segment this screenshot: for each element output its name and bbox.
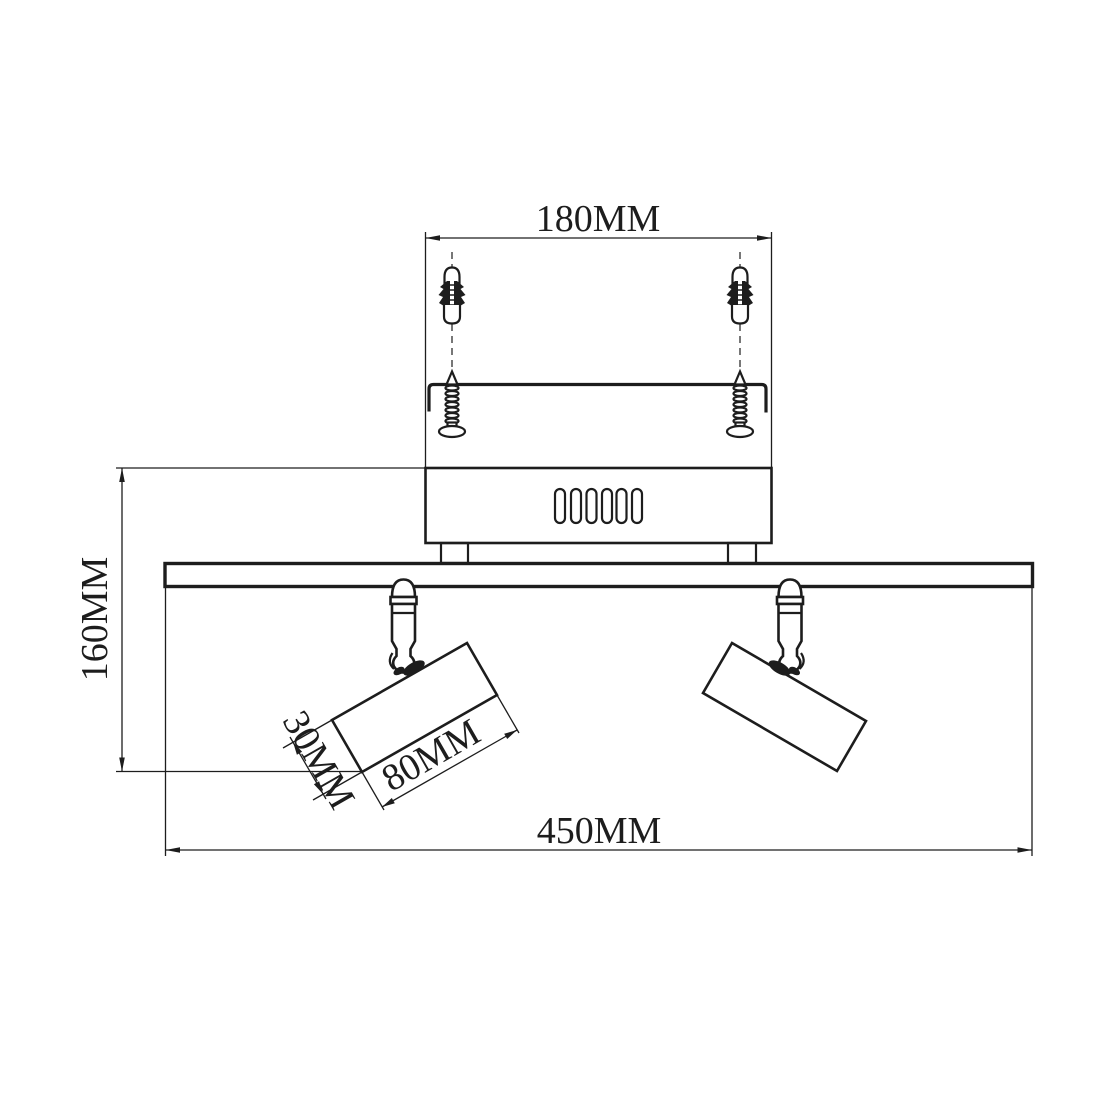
spotlight-installation-diagram: 180MM bbox=[0, 0, 1119, 1119]
arrowhead-front bbox=[382, 798, 395, 807]
wall-anchor-right bbox=[727, 268, 754, 324]
arrowhead-top bbox=[119, 468, 125, 482]
arrowhead-rear bbox=[504, 730, 517, 739]
label-180mm: 180MM bbox=[536, 198, 661, 240]
track-rail bbox=[165, 564, 1033, 587]
arrowhead-right bbox=[1018, 847, 1033, 853]
arrowhead-left bbox=[166, 847, 181, 853]
arrowhead-left bbox=[426, 235, 441, 241]
spot-stem-right bbox=[766, 580, 803, 679]
screw-right bbox=[727, 372, 753, 438]
label-450mm: 450MM bbox=[537, 810, 662, 852]
arrowhead-bottom bbox=[119, 758, 125, 772]
canopy-foot-right bbox=[728, 543, 756, 563]
dimension-mounting-hole-spacing: 180MM bbox=[426, 198, 772, 468]
arrowhead-right bbox=[757, 235, 772, 241]
screw-left bbox=[439, 372, 465, 438]
mounting-bracket bbox=[429, 385, 766, 413]
wall-anchor-left bbox=[439, 268, 466, 324]
canopy-foot-left bbox=[441, 543, 468, 563]
label-160mm: 160MM bbox=[74, 557, 116, 682]
canopy-box bbox=[426, 468, 772, 563]
spot-stem-left bbox=[390, 580, 427, 679]
anchor-centerlines bbox=[452, 252, 740, 374]
drawing-canvas: 180MM bbox=[0, 0, 1119, 1119]
